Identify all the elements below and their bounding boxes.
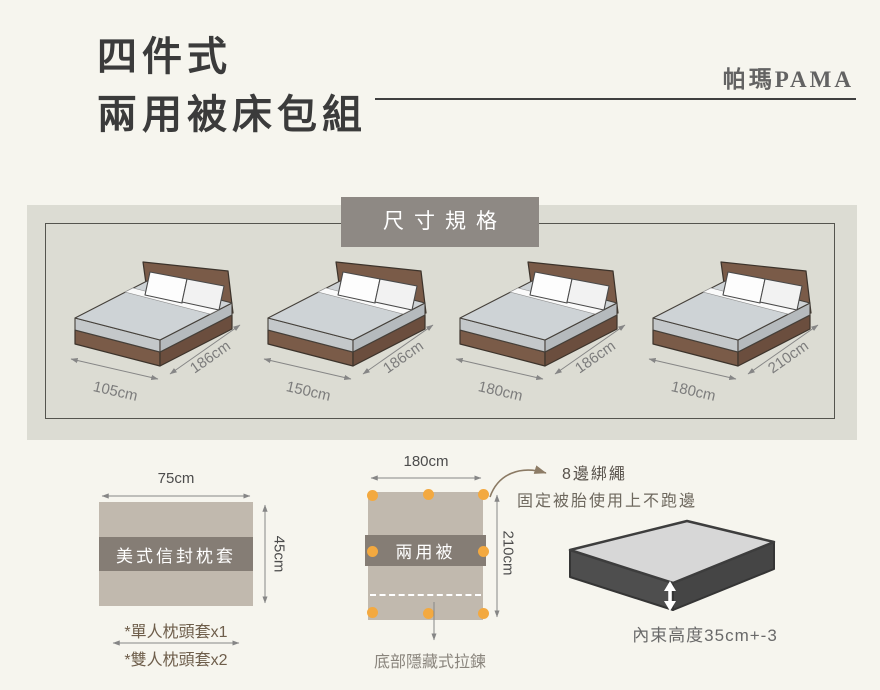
pillowcase-band: 美式信封枕套 [99, 537, 253, 571]
bed-diagram-double: 150cm 186cm [256, 255, 456, 405]
bed-width-label: 105cm [91, 378, 139, 405]
brand-logo: 帕瑪PAMA [723, 60, 854, 94]
mattress-icon [560, 505, 790, 617]
pillowcase-diagram: 75cm 美式信封枕套 45cm *單人枕頭套x1 *雙人枕頭套x2 [88, 470, 303, 675]
page-title: 四件式 兩用被床包組 [97, 28, 367, 144]
bed-diagram-single: 105cm 186cm [63, 255, 263, 405]
quilt-stitch-line [370, 594, 481, 596]
pillow-note-double: *雙人枕頭套x2 [88, 646, 264, 670]
product-spec-page: { "header": { "title_line1": "四件式", "tit… [0, 0, 880, 690]
zipper-note: 底部隱藏式拉鍊 [365, 648, 495, 672]
tie-dot-mid-right [478, 546, 489, 557]
pillow-width-arrow [99, 490, 253, 502]
tie-dot-top-left [367, 490, 378, 501]
bed-width-label: 180cm [476, 378, 524, 405]
quilt-width-label: 180cm [368, 453, 484, 470]
size-section-badge: 尺寸規格 [341, 197, 539, 247]
pillowcase-shape: 美式信封枕套 [99, 502, 253, 606]
tie-note-title: 8邊綁繩 [562, 460, 627, 484]
pillow-height-label: 45cm [271, 536, 288, 573]
mattress-diagram: 內束高度35cm+-3 [560, 505, 860, 655]
pillow-width-label: 75cm [99, 470, 253, 487]
bed-diagram-king: 180cm 210cm [641, 255, 841, 405]
tie-dot-mid-left [367, 546, 378, 557]
pillow-height-arrow [259, 502, 271, 606]
mattress-height-note: 內束高度35cm+-3 [585, 621, 825, 646]
tie-dot-bottom-left [367, 607, 378, 618]
quilt-width-arrow [368, 472, 484, 484]
page-title-line1: 四件式 [97, 28, 367, 86]
bed-diagram-queen: 180cm 186cm [448, 255, 648, 405]
zipper-pointer-arrow [428, 600, 440, 644]
bed-width-label: 150cm [284, 378, 332, 405]
header-rule [375, 98, 856, 100]
tie-dot-top-middle [423, 489, 434, 500]
page-title-line2: 兩用被床包組 [97, 86, 367, 144]
tie-dot-bottom-right [478, 608, 489, 619]
bed-width-label: 180cm [669, 378, 717, 405]
quilt-height-label: 210cm [500, 530, 517, 575]
quilt-band: 兩用被 [365, 535, 486, 566]
